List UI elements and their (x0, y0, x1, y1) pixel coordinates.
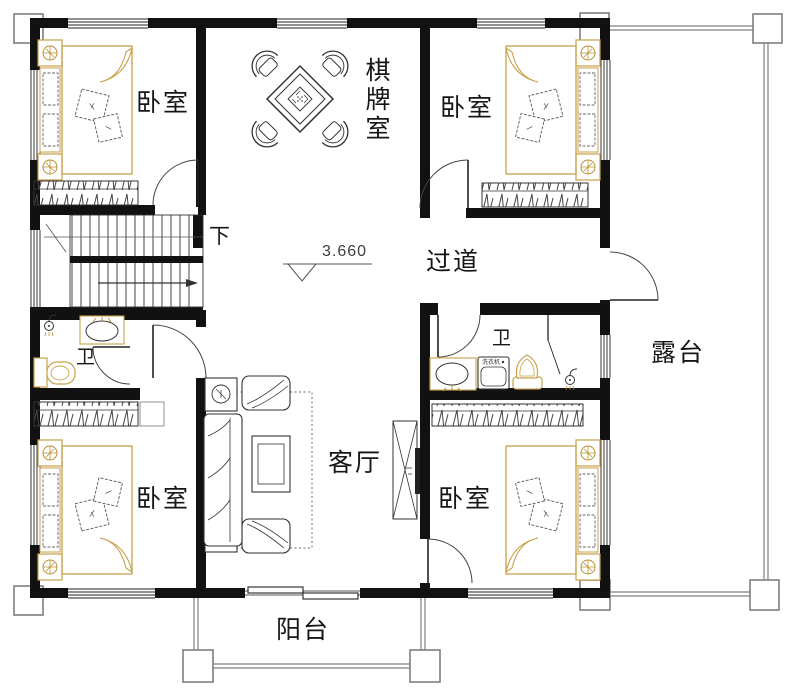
toilet (513, 355, 542, 389)
coffee-table (252, 436, 290, 492)
door-bathroom-left (93, 347, 130, 384)
toilet (34, 358, 75, 387)
bed-top-right (506, 40, 600, 180)
chair (246, 116, 283, 153)
label-bedroom-top-right: 卧室 (440, 96, 494, 121)
door-bathroom-right (438, 315, 480, 357)
wardrobe-bottom-left (34, 402, 138, 426)
doors (93, 160, 658, 583)
column (410, 650, 440, 682)
window (601, 335, 610, 378)
bed-top-left (38, 40, 132, 180)
label-corridor: 过道 (426, 250, 480, 275)
shower (548, 315, 577, 390)
armchair (242, 519, 290, 553)
mahjong-table (246, 45, 354, 153)
sofa (204, 414, 242, 546)
window (601, 440, 610, 545)
label-bathroom-left: 卫 (76, 348, 95, 367)
label-washer: 洗衣机 (482, 360, 500, 366)
sliding-door (245, 587, 360, 599)
label-floor-level: 3.660 (322, 244, 367, 260)
label-bathroom-right: 卫 (492, 329, 511, 348)
stairs (44, 215, 203, 307)
door-hall-lobby (153, 325, 206, 378)
wardrobe-top-right (482, 183, 588, 207)
label-stairs-down: 下 (209, 226, 230, 247)
label-living-room: 客厅 (328, 451, 382, 476)
stair-break-line (46, 224, 66, 252)
window (277, 19, 347, 28)
window (468, 589, 553, 598)
bed-bottom-right (506, 440, 600, 580)
label-bedroom-bottom-right: 卧室 (438, 487, 492, 512)
window (31, 70, 40, 160)
window (68, 589, 155, 598)
window (68, 19, 148, 28)
floor-plan: 卧室 卧室 棋牌室 下 3.660 过道 卫 卫 客厅 卧室 卧室 阳台 露台 … (0, 0, 789, 691)
bathroom-right-fixtures (430, 315, 577, 391)
column (750, 580, 779, 610)
bed-bottom-left (38, 440, 132, 580)
door-terrace (610, 252, 658, 300)
door-bedroom-top-left (153, 160, 198, 205)
label-terrace: 露台 (651, 341, 705, 366)
sink (430, 358, 476, 391)
window (477, 19, 545, 28)
stair-arrow (98, 279, 198, 287)
column (753, 14, 782, 43)
label-balcony: 阳台 (276, 618, 330, 643)
wardrobe-bottom-right (432, 404, 583, 426)
window (31, 230, 40, 310)
chair (317, 116, 354, 153)
stair-divider (70, 256, 203, 263)
sofa-set (204, 376, 312, 553)
tv-unit (393, 421, 420, 519)
tv-screen (415, 448, 420, 494)
sink (80, 316, 124, 344)
chair (317, 45, 354, 82)
chair (246, 45, 283, 82)
elevation-marker (283, 264, 372, 281)
column (183, 650, 213, 682)
wardrobe-top-left (34, 181, 138, 205)
armchair (242, 376, 290, 410)
window (601, 60, 610, 160)
shower-head-icon (566, 369, 578, 390)
label-game-room: 棋牌室 (363, 57, 388, 144)
label-bedroom-bottom-left: 卧室 (136, 487, 190, 512)
door-bedroom-bottom-right (428, 539, 472, 583)
terrace-railing (608, 26, 768, 596)
wardrobe-cabinet (140, 402, 164, 426)
label-bedroom-top-left: 卧室 (136, 91, 190, 116)
